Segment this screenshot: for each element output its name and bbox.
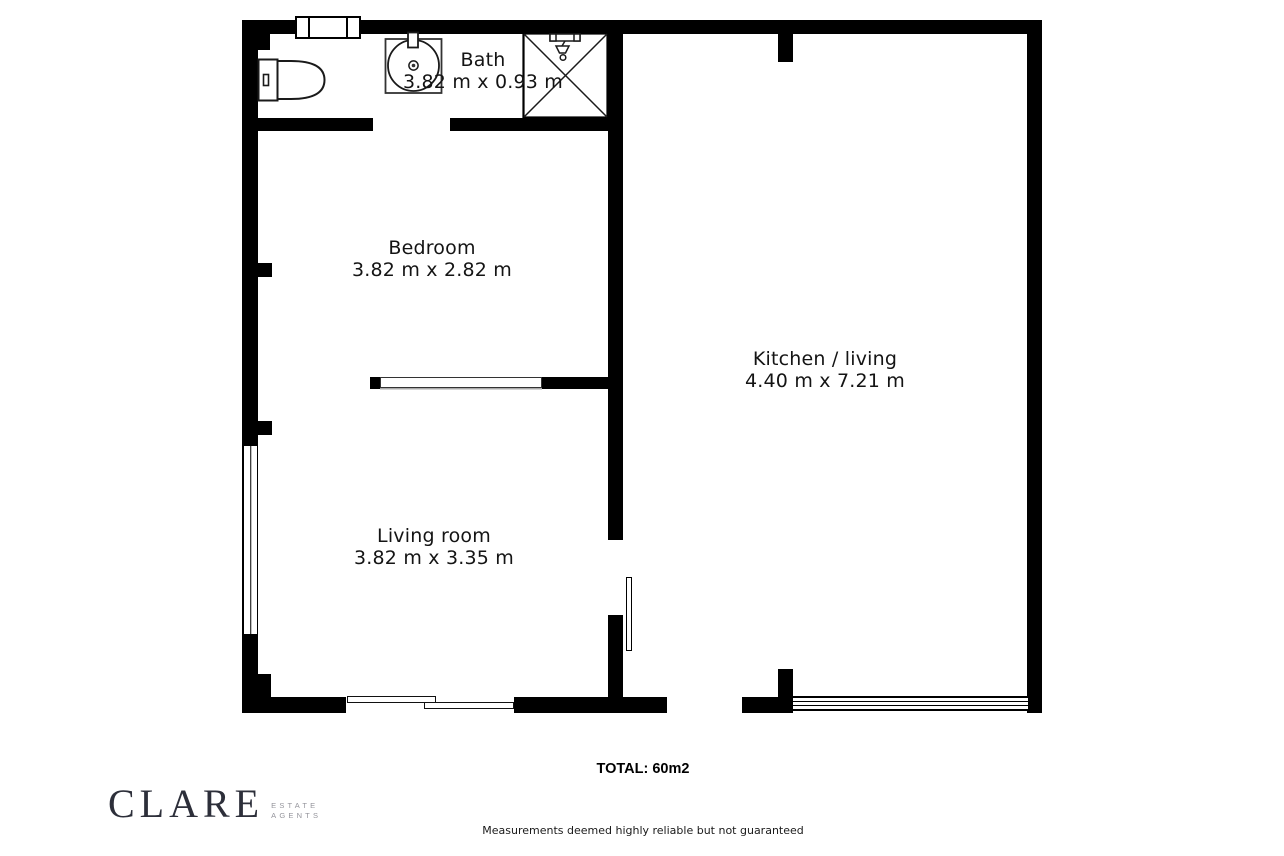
wall-stub-left-lower	[258, 421, 272, 435]
window-mullion	[308, 18, 310, 37]
wall-bottom-entry-right	[742, 697, 793, 713]
agency-logo: CLARE ESTATE AGENTS	[108, 784, 321, 824]
wall-stub-left-upper	[258, 263, 272, 277]
logo-tagline: ESTATE AGENTS	[271, 801, 321, 821]
room-name: Living room	[354, 526, 514, 548]
logo-tagline-line2: AGENTS	[271, 811, 321, 821]
sliding-door-living-panel-1	[347, 696, 436, 703]
door-kitchen-leaf	[626, 577, 632, 651]
window-bath-top	[295, 16, 361, 39]
room-dimensions: 4.40 m x 7.21 m	[745, 371, 905, 393]
total-area-label: TOTAL: 60m2	[597, 761, 690, 777]
wall-central-upper	[608, 34, 623, 540]
wall-bottom-middle	[514, 697, 667, 713]
room-dimensions: 3.82 m x 0.93 m	[403, 72, 563, 94]
room-dimensions: 3.82 m x 3.35 m	[354, 548, 514, 570]
wall-central-lower	[608, 615, 623, 697]
logo-tagline-line1: ESTATE	[271, 801, 321, 811]
pocket-door-bedroom	[380, 377, 542, 388]
window-line	[793, 705, 1028, 706]
wall-bottom-left	[242, 697, 346, 713]
wall-stub-kitchen-bottom	[778, 669, 793, 697]
wall-top	[242, 20, 1042, 34]
wall-divider-right	[541, 377, 623, 389]
logo-brand-text: CLARE	[108, 784, 264, 824]
toilet-icon	[257, 58, 327, 102]
window-living-left	[243, 445, 258, 635]
floorplan-page: Bath 3.82 m x 0.93 m Bedroom 3.82 m x 2.…	[0, 0, 1284, 856]
window-mullion	[250, 446, 252, 634]
room-label-living-room: Living room 3.82 m x 3.35 m	[354, 526, 514, 569]
room-label-bath: Bath 3.82 m x 0.93 m	[403, 50, 563, 93]
window-kitchen-bottom	[793, 696, 1028, 711]
sliding-door-living-panel-2	[424, 702, 514, 709]
room-dimensions: 3.82 m x 2.82 m	[352, 260, 512, 282]
room-name: Bath	[403, 50, 563, 72]
wall-step-bottom-left	[258, 674, 271, 697]
room-name: Kitchen / living	[745, 349, 905, 371]
room-name: Bedroom	[352, 238, 512, 260]
wall-step-top-left	[258, 20, 270, 50]
wall-stub-kitchen-top	[778, 34, 793, 62]
window-mullion	[346, 18, 348, 37]
room-label-bedroom: Bedroom 3.82 m x 2.82 m	[352, 238, 512, 281]
room-label-kitchen-living: Kitchen / living 4.40 m x 7.21 m	[745, 349, 905, 392]
disclaimer-text: Measurements deemed highly reliable but …	[482, 824, 804, 837]
wall-bath-bottom-right	[450, 118, 608, 131]
wall-bath-bottom-left	[258, 118, 373, 131]
wall-right	[1027, 20, 1042, 713]
window-line	[793, 701, 1028, 702]
